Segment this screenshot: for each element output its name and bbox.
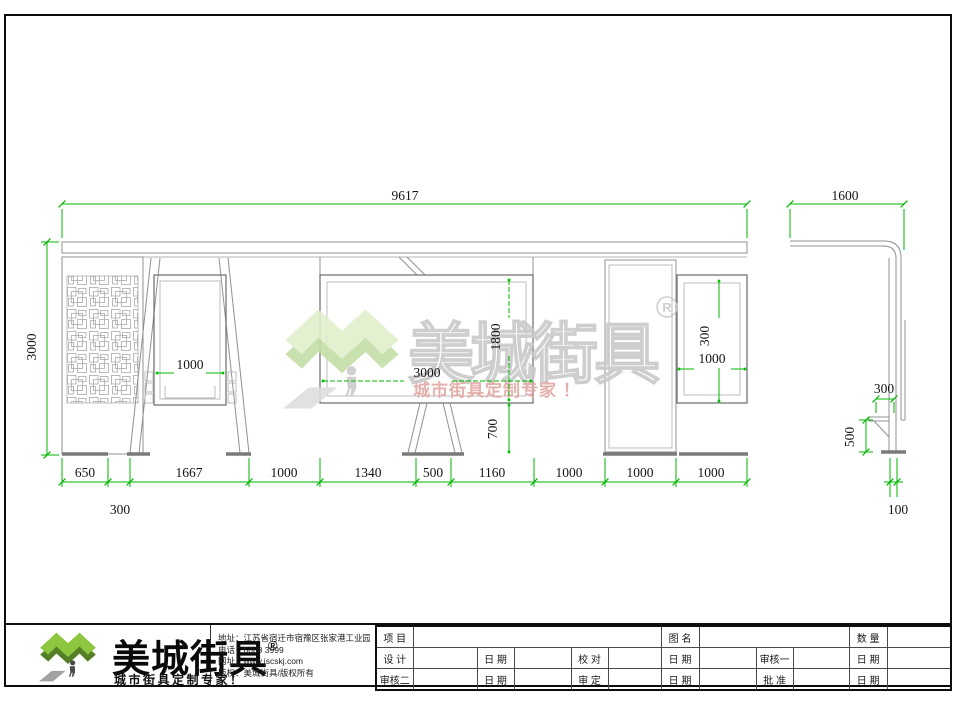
label-date: 日 期 <box>477 669 514 691</box>
value-date <box>699 669 756 691</box>
label-drawing-name: 图 名 <box>661 626 699 648</box>
svg-text:1000: 1000 <box>699 351 726 366</box>
value-date <box>514 669 571 691</box>
title-block-table: 项 目 图 名 数 量 设 计 日 期 校 对 日 期 审核一 日 期 <box>375 625 952 691</box>
watermark-slogan-text: 城市街具定制专家 ！ <box>413 380 581 400</box>
svg-text:R: R <box>662 300 672 315</box>
svg-text:1667: 1667 <box>176 465 203 480</box>
footer-strip: 美城街具® 城市街具定制专家！ 地址：江苏省宿迁市宿豫区张家港工业园区南丰路西侧… <box>6 623 950 685</box>
svg-text:300: 300 <box>874 381 895 396</box>
svg-text:1800: 1800 <box>488 323 503 350</box>
value-reviewer-1 <box>793 648 849 669</box>
value-date <box>887 648 951 669</box>
title-block-row-2: 设 计 日 期 校 对 日 期 审核一 日 期 <box>376 648 951 669</box>
svg-text:650: 650 <box>75 465 96 480</box>
company-address: 地址：江苏省宿迁市宿豫区张家港工业园区南丰路西侧1号 <box>218 633 370 645</box>
dimension-total-width: 9617 <box>59 188 751 238</box>
side-view: 1600 300 500 100 <box>787 188 909 517</box>
company-phone: 电话：6088 3999 <box>218 645 370 657</box>
watermark-brand-text: 美城街具 <box>408 317 660 391</box>
svg-text:500: 500 <box>423 465 444 480</box>
label-date: 日 期 <box>661 669 699 691</box>
label-approve-check: 审 定 <box>571 669 608 691</box>
registered-mark-icon: R <box>657 297 677 317</box>
label-quantity: 数 量 <box>849 626 887 648</box>
label-date: 日 期 <box>849 669 887 691</box>
dimension-post-width: 100 <box>884 458 908 517</box>
value-design <box>413 648 477 669</box>
value-date <box>514 648 571 669</box>
roof-beam <box>62 242 747 253</box>
dimension-left-panel-width: 1000 <box>156 357 225 374</box>
svg-text:1340: 1340 <box>355 465 382 480</box>
value-reviewer-2 <box>413 669 477 691</box>
svg-text:500: 500 <box>842 427 857 448</box>
value-approve-check <box>608 669 661 691</box>
dimension-total-height: 3000 <box>24 239 59 459</box>
company-copyright: 版权：美城街具/版权所有 <box>218 668 370 680</box>
svg-text:100: 100 <box>888 502 909 517</box>
drawing-sheet: 美城街具 R 城市街具定制专家 ！ 9617 3000 <box>0 0 960 704</box>
value-quantity <box>887 626 951 648</box>
svg-text:700: 700 <box>485 419 500 440</box>
svg-text:3000: 3000 <box>414 365 441 380</box>
company-website: 网址：www.jscskj.com <box>218 656 370 668</box>
label-design: 设 计 <box>376 648 413 669</box>
title-block-row-1: 项 目 图 名 数 量 <box>376 626 951 648</box>
value-date <box>699 648 756 669</box>
title-block-row-3: 审核二 日 期 审 定 日 期 批 准 日 期 <box>376 669 951 691</box>
watermark: 美城街具 R 城市街具定制专家 ！ <box>283 297 677 409</box>
right-lightbox-panel <box>677 275 747 403</box>
value-project <box>413 626 661 648</box>
svg-text:1000: 1000 <box>271 465 298 480</box>
svg-text:1000: 1000 <box>556 465 583 480</box>
value-proofread <box>608 648 661 669</box>
svg-text:9617: 9617 <box>392 188 419 203</box>
label-date: 日 期 <box>477 648 514 669</box>
label-project: 项 目 <box>376 626 413 648</box>
dimension-seat-height: 500 <box>842 417 873 456</box>
dimension-leg-gap: 300 <box>110 502 131 517</box>
svg-text:1160: 1160 <box>479 465 506 480</box>
svg-text:300: 300 <box>697 326 712 347</box>
svg-text:3000: 3000 <box>24 333 39 360</box>
dimension-seat-depth: 300 <box>873 381 898 413</box>
value-approve <box>793 669 849 691</box>
left-lightbox-panel <box>154 275 226 405</box>
svg-text:1600: 1600 <box>832 188 859 203</box>
label-date: 日 期 <box>661 648 699 669</box>
label-reviewer-1: 审核一 <box>756 648 793 669</box>
label-approve: 批 准 <box>756 669 793 691</box>
label-reviewer-2: 审核二 <box>376 669 413 691</box>
company-logo-block: 美城街具® 城市街具定制专家！ <box>6 625 211 687</box>
cad-drawing-area: 美城街具 R 城市街具定制专家 ！ 9617 3000 <box>0 0 960 623</box>
label-date: 日 期 <box>849 648 887 669</box>
dimension-bottom-chain: 650 1667 1000 1340 500 1160 1000 1000 10… <box>59 458 751 517</box>
left-lattice-panel <box>62 257 143 454</box>
company-logo-m-icon <box>20 628 116 686</box>
watermark-logo-m-icon <box>283 309 399 408</box>
value-drawing-name <box>699 626 849 648</box>
value-date <box>887 669 951 691</box>
svg-text:1000: 1000 <box>177 357 204 372</box>
a-frame-legs <box>130 258 249 453</box>
svg-text:1000: 1000 <box>698 465 725 480</box>
company-contact-info: 地址：江苏省宿迁市宿豫区张家港工业园区南丰路西侧1号 电话：6088 3999 … <box>218 633 370 679</box>
dimension-right-panel: 300 1000 <box>678 280 747 403</box>
label-proofread: 校 对 <box>571 648 608 669</box>
dimension-screen-clearance: 700 <box>485 404 510 454</box>
svg-text:1000: 1000 <box>627 465 654 480</box>
